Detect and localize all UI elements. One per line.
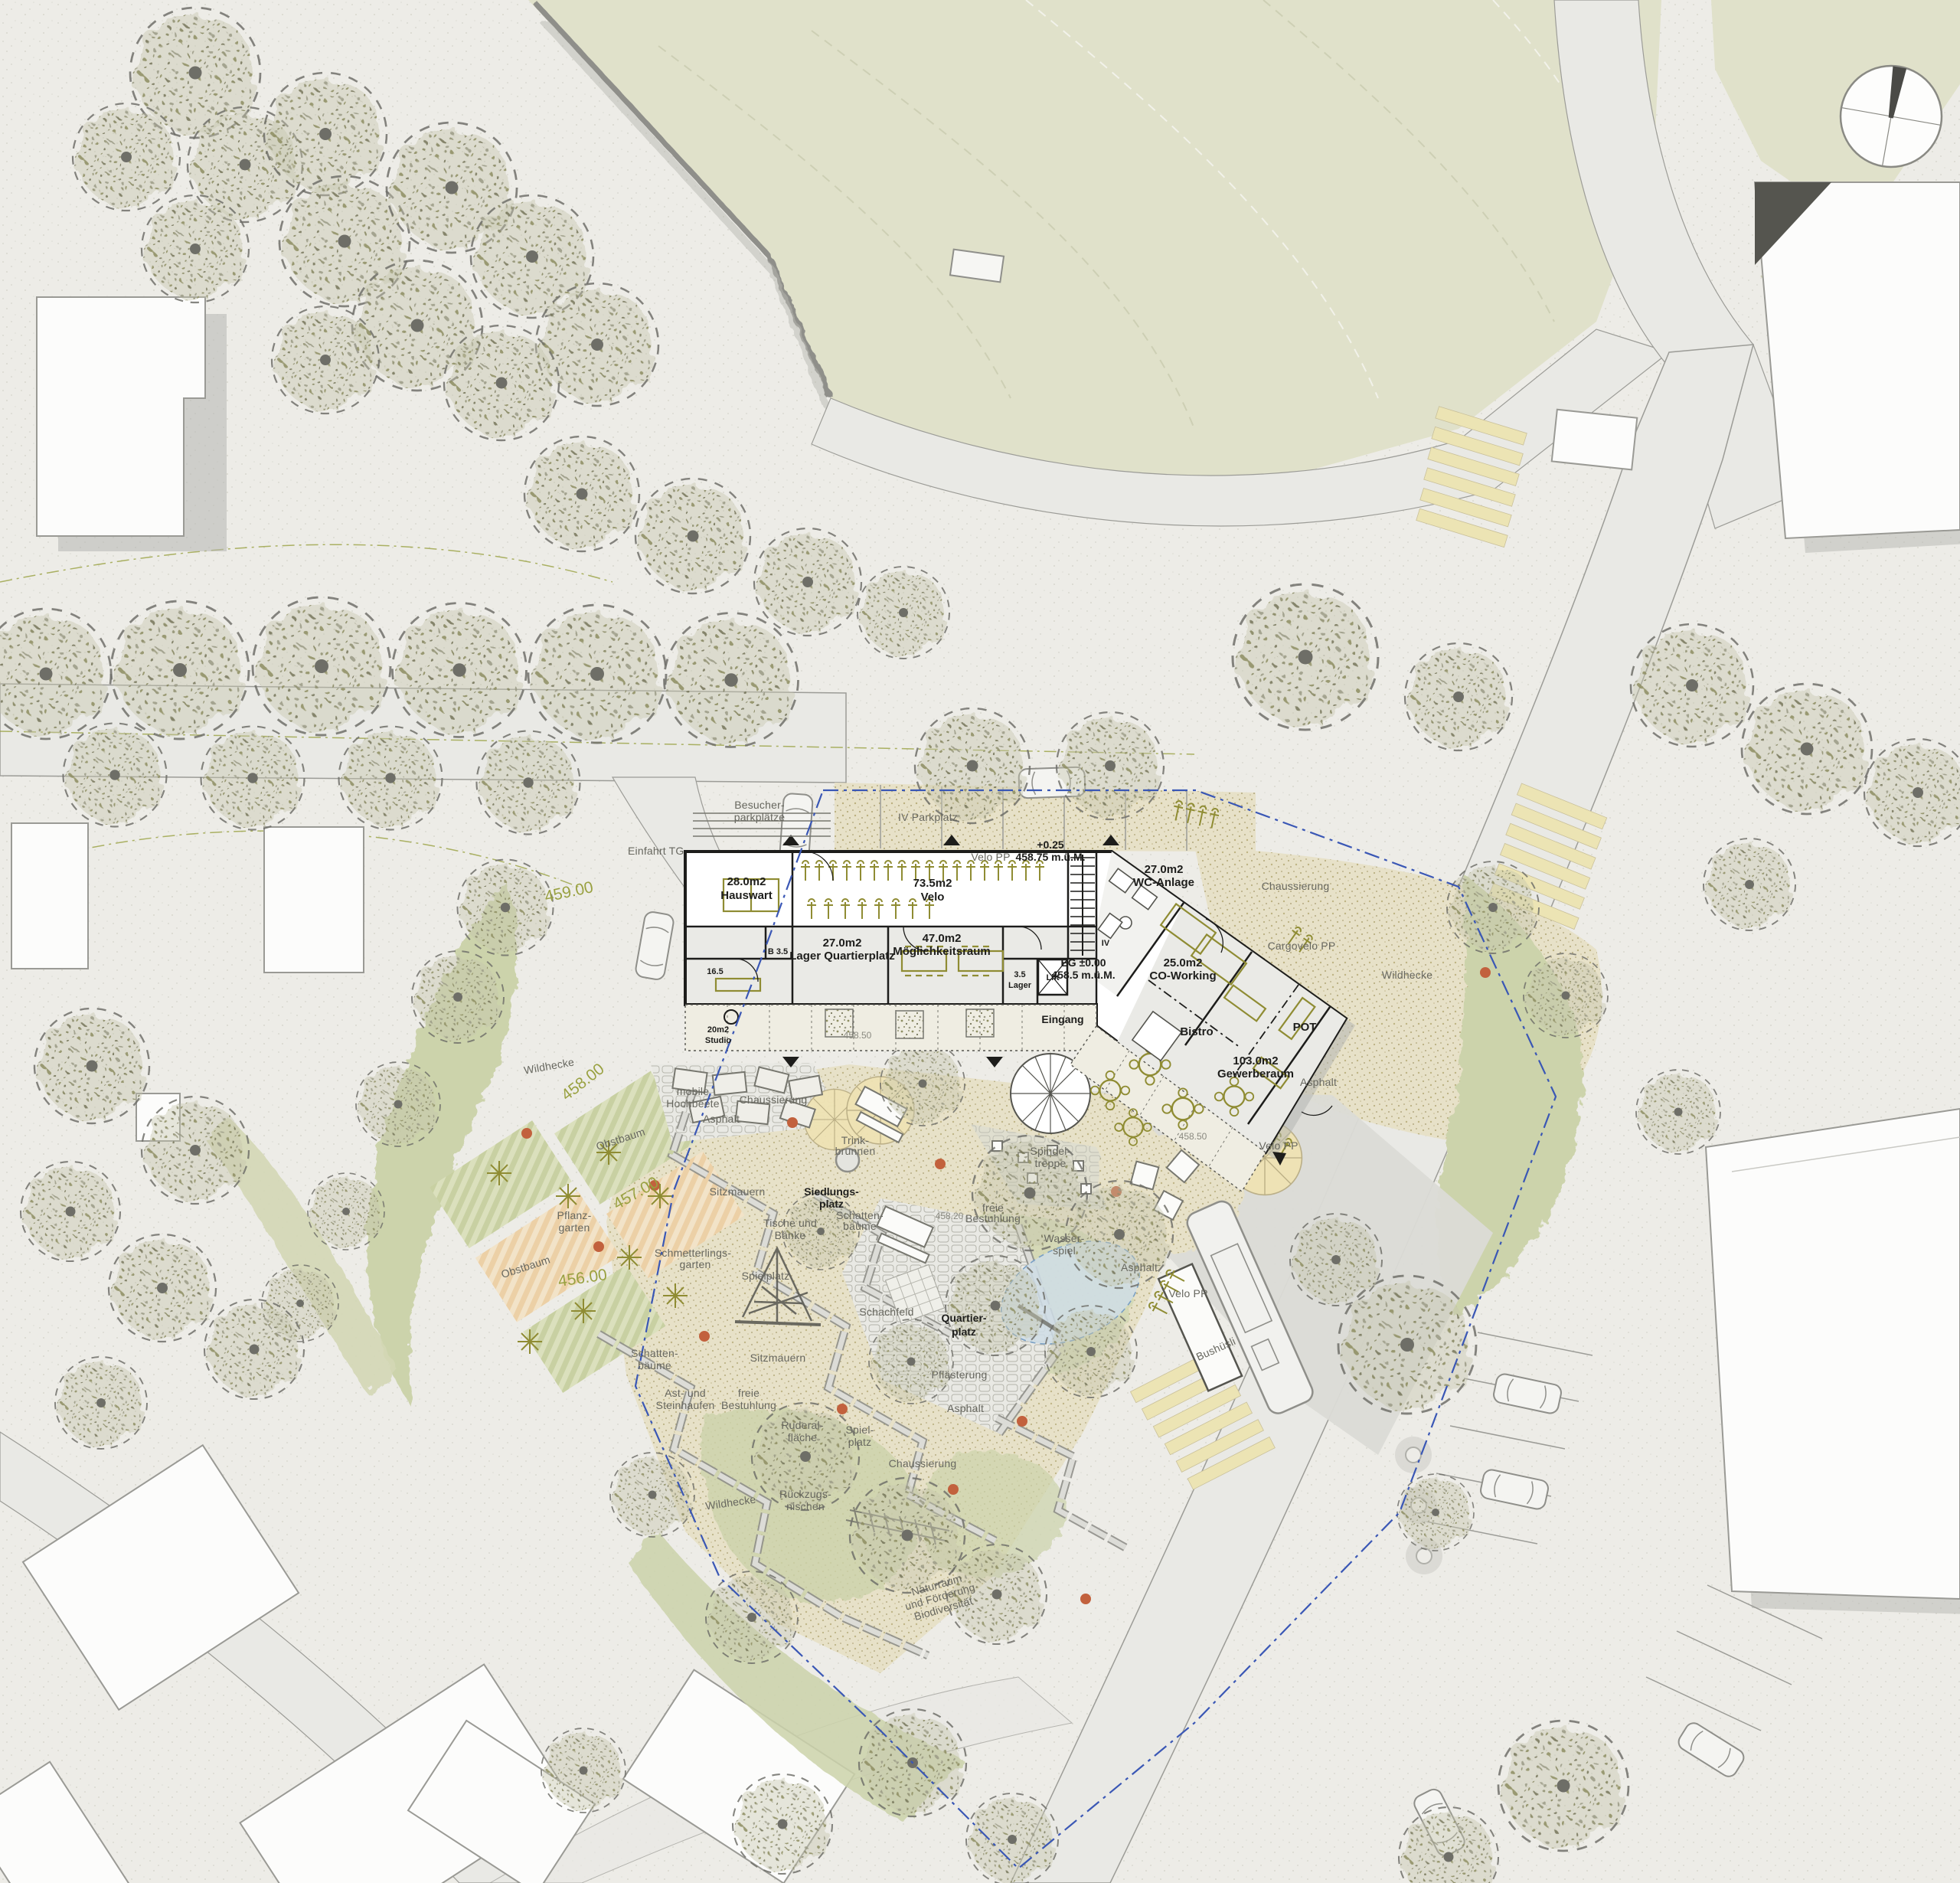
room-label-lager: 3.5 (1014, 970, 1025, 979)
label-tische-baenke: Tische und (763, 1217, 817, 1229)
label-freie-bestuhlung: freie (738, 1387, 759, 1399)
room-label-lager-quartierplatz: 27.0m2 (823, 937, 862, 950)
label-chaussierung: Chaussierung (740, 1094, 808, 1106)
building-southeast (1706, 1109, 1960, 1614)
room-label-moeglichkeitsraum: 47.0m2 (923, 932, 962, 945)
svg-text:bäume: bäume (638, 1359, 671, 1371)
label-siedlungsplatz: Siedlungs- (804, 1185, 859, 1198)
svg-text:458.75 m.ü.M.: 458.75 m.ü.M. (1015, 851, 1085, 863)
svg-text:Velo: Velo (921, 891, 945, 904)
level-label-eg: EG ±0.00 (1060, 956, 1106, 969)
label-iv-parkplatz: IV Parkplatz (898, 811, 958, 823)
label-ruderalflaeche: Ruderal- (781, 1419, 823, 1431)
svg-text:platz: platz (848, 1436, 872, 1448)
room-label-pot: POT (1293, 1021, 1317, 1034)
label-schattenbaeume: Schatten- (631, 1347, 678, 1359)
svg-text:Steinhaufen: Steinhaufen (656, 1399, 715, 1411)
svg-text:Lager Quartierplatz: Lager Quartierplatz (789, 950, 895, 963)
svg-text:Studio: Studio (705, 1036, 731, 1045)
svg-text:Hochbeete: Hochbeete (666, 1097, 720, 1110)
svg-text:platz: platz (952, 1326, 976, 1338)
room-label-gewerberaum: 103.0m2 (1233, 1054, 1278, 1067)
svg-text:CO-Working: CO-Working (1149, 969, 1216, 982)
label-asphalt: Asphalt (947, 1402, 984, 1414)
label-velo-pp: Velo PP (1259, 1139, 1298, 1152)
label-eingang: Eingang (1041, 1013, 1083, 1025)
label-sitzmauern: Sitzmauern (750, 1352, 806, 1364)
label-rueckzugsnischen: Rückzugs- (779, 1488, 831, 1500)
svg-text:Gewerberaum: Gewerberaum (1217, 1067, 1294, 1080)
site-plan-drawing: 459.00 458.00 457.00 456.00 458.50 458.5… (0, 0, 1960, 1883)
svg-text:458.5 m.ü.M.: 458.5 m.ü.M. (1051, 969, 1115, 981)
label-chaussierung: Chaussierung (889, 1457, 957, 1469)
room-label-velo: 73.5m2 (913, 877, 952, 890)
svg-text:bäume: bäume (843, 1220, 877, 1232)
label-velo-pp: Velo PP (971, 851, 1010, 863)
site-plan-page: 459.00 458.00 457.00 456.00 458.50 458.5… (0, 0, 1960, 1883)
label-quartierplatz: Quartier- (941, 1312, 986, 1324)
label-spindeltreppe: Spindel- (1031, 1145, 1071, 1157)
svg-text:treppe: treppe (1035, 1157, 1067, 1169)
label-wildhecke: Wildhecke (1382, 969, 1432, 981)
svg-text:garten: garten (680, 1258, 711, 1270)
park-cabin (1552, 410, 1638, 470)
room-label-bad: B 3.5 (768, 947, 788, 956)
label-entry-elevation: +0.25 (1037, 839, 1064, 851)
label-cargovelo-pp: Cargovelo PP (1268, 940, 1336, 952)
svg-text:Möglichkeitsraum: Möglichkeitsraum (893, 945, 991, 958)
label-velo-pp: Velo PP (1168, 1287, 1207, 1299)
spot-elevation: 458.50 (1179, 1131, 1207, 1142)
svg-text:parkplätze: parkplätze (734, 811, 786, 823)
svg-text:Bestuhlung: Bestuhlung (965, 1212, 1021, 1224)
spot-elevation: 458.20 (936, 1211, 964, 1221)
label-hochbeete: mobile (677, 1085, 709, 1097)
svg-text:garten: garten (559, 1221, 590, 1234)
room-label-iv: IV (1102, 939, 1110, 948)
label-einfahrt-tg: Einfahrt TG (628, 845, 684, 857)
label-asphalt: Asphalt (1121, 1261, 1158, 1273)
label-pflanzgarten: Pflanz- (557, 1209, 592, 1221)
room-label-wc: 27.0m2 (1145, 863, 1184, 876)
arcade-colonnade (685, 1005, 1096, 1051)
label-spielplatz: Spiel- (846, 1424, 874, 1436)
svg-text:brunnen: brunnen (835, 1145, 876, 1157)
svg-text:platz: platz (819, 1198, 844, 1210)
label-pflaesterung: Pflästerung (931, 1368, 987, 1381)
label-wasserspiel: Wasser- (1044, 1232, 1085, 1244)
room-label-hauswart: 28.0m2 (727, 875, 766, 888)
spot-elevation: 458.50 (844, 1030, 872, 1041)
label-chaussierung: Chaussierung (1262, 880, 1330, 892)
building-northeast (1755, 182, 1960, 553)
label-schachfeld: Schachfeld (859, 1306, 913, 1318)
building-northwest (37, 297, 227, 551)
room-label-zimmer: 16.5 (707, 967, 723, 976)
svg-text:Bestuhlung: Bestuhlung (721, 1399, 776, 1411)
svg-text:spiel: spiel (1053, 1244, 1076, 1257)
label-schmetterlingsgarten: Schmetterlings- (655, 1247, 731, 1259)
room-label-studio: 20m2 (707, 1025, 729, 1035)
svg-text:fläche: fläche (788, 1431, 818, 1443)
label-sitzmauern: Sitzmauern (710, 1185, 766, 1198)
svg-text:WC-Anlage: WC-Anlage (1133, 876, 1194, 889)
svg-text:Lager: Lager (1008, 981, 1032, 990)
label-asphalt: Asphalt (703, 1113, 740, 1125)
svg-text:nischen: nischen (786, 1500, 825, 1512)
room-label-bistro: Bistro (1180, 1025, 1213, 1038)
svg-text:Hauswart: Hauswart (720, 889, 773, 902)
svg-text:Bänke: Bänke (775, 1229, 806, 1241)
label-ast-steinhaufen: Ast- und (665, 1387, 706, 1399)
room-label-coworking: 25.0m2 (1164, 956, 1203, 969)
label-besucher-pp: Besucher- (734, 799, 785, 811)
label-spielplatz: Spielplatz (742, 1270, 790, 1282)
label-asphalt: Asphalt (1300, 1076, 1337, 1088)
